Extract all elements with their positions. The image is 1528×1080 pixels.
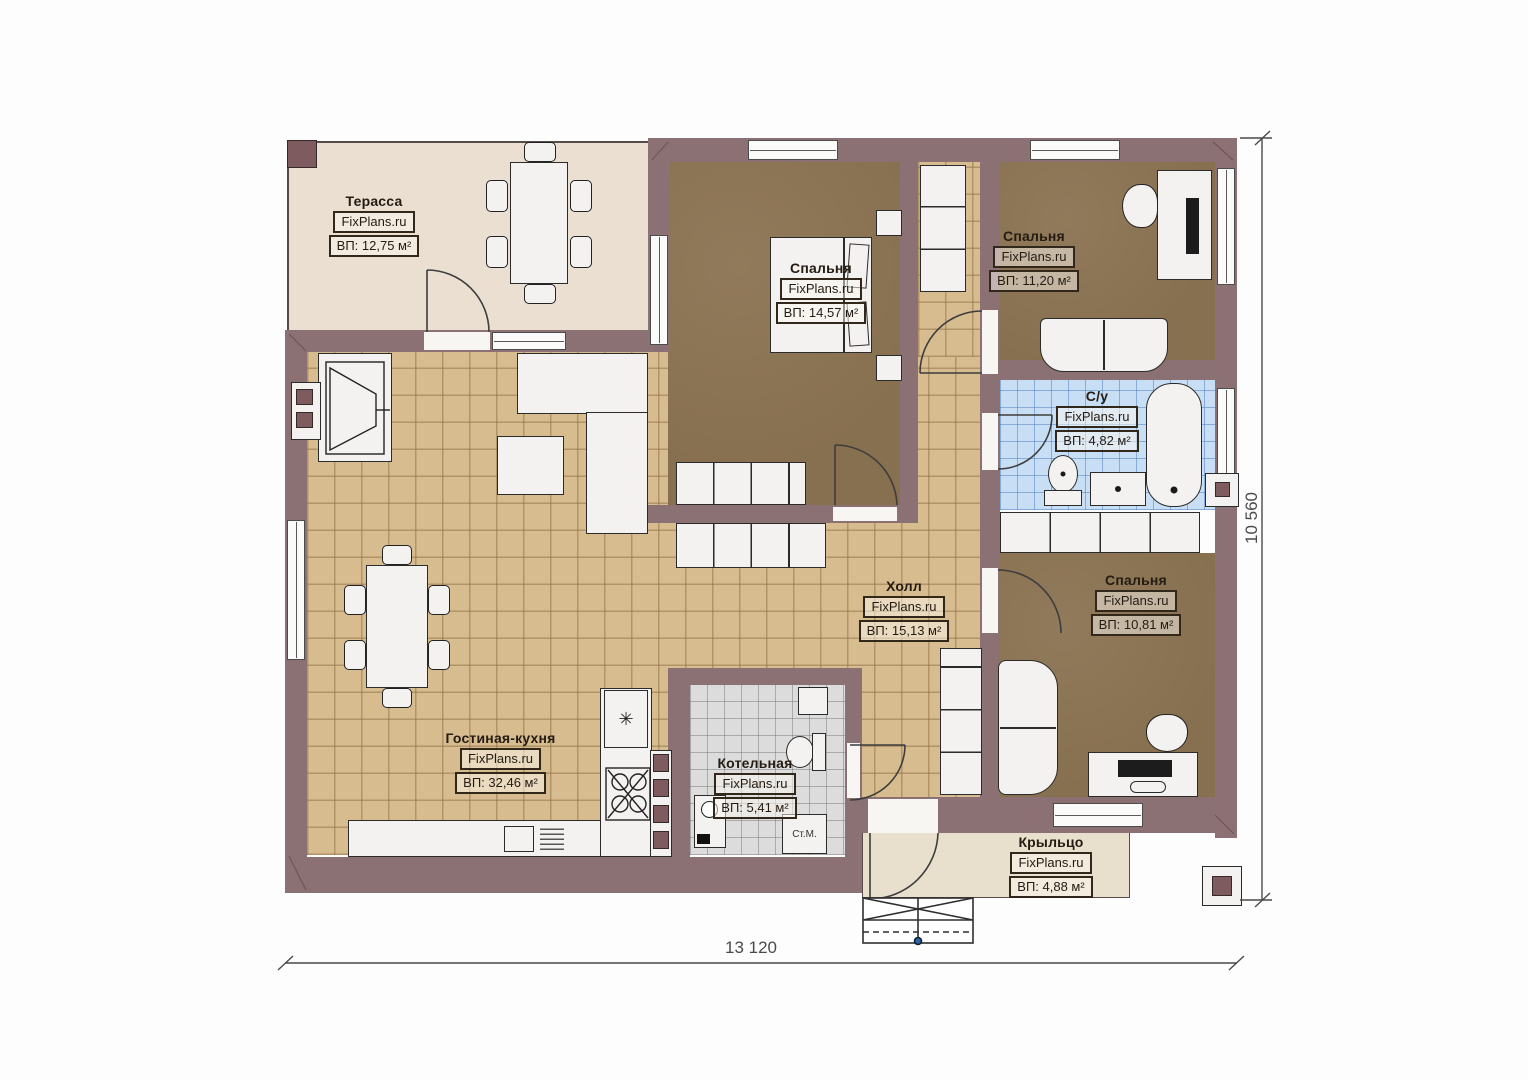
room-label-hall: Холл FixPlans.ru ВП: 15,13 м² xyxy=(848,578,960,642)
room-name: С/у xyxy=(1086,388,1108,404)
desk-chair xyxy=(1122,184,1158,228)
nightstand xyxy=(876,210,902,236)
room-label-boiler: Котельная FixPlans.ru ВП: 5,41 м² xyxy=(700,755,810,819)
fireplace-flue-core xyxy=(296,389,313,405)
room-area: ВП: 5,41 м² xyxy=(713,797,796,819)
wall-bottom xyxy=(285,857,862,893)
room-name: Спальня xyxy=(790,260,852,276)
watermark: FixPlans.ru xyxy=(1010,852,1091,874)
bath-sink xyxy=(1090,472,1146,506)
terrace-chair xyxy=(524,284,556,304)
desk-keyboard xyxy=(1130,781,1166,793)
terrace-chair xyxy=(570,180,592,212)
porch-column-core xyxy=(1212,876,1232,896)
room-label-terrace: Терасса FixPlans.ru ВП: 12,75 м² xyxy=(318,193,430,257)
corner-sofa-top xyxy=(517,353,648,414)
room-label-bedroom3: Спальня FixPlans.ru ВП: 10,81 м² xyxy=(1080,572,1192,636)
terrace-chair xyxy=(524,142,556,162)
toilet-bowl xyxy=(1048,455,1078,493)
room-area: ВП: 14,57 м² xyxy=(776,302,867,324)
terrace-chair xyxy=(486,236,508,268)
floor-plan: ✳ Ст.М. xyxy=(0,0,1528,1080)
window-bedroom1-top xyxy=(748,140,838,160)
dining-table xyxy=(366,565,428,688)
room-area: ВП: 11,20 м² xyxy=(989,270,1079,292)
window-bedroom3-porch xyxy=(1053,803,1143,827)
cabinet-module xyxy=(653,754,669,772)
hall-wardrobe-top xyxy=(676,523,826,568)
dimension-height: 10 560 xyxy=(1242,488,1262,548)
wall-column-marker-core xyxy=(1215,482,1230,497)
dining-chair xyxy=(382,688,412,708)
terrace-table xyxy=(510,162,568,284)
watermark: FixPlans.ru xyxy=(993,246,1074,268)
fridge: ✳ xyxy=(604,690,648,748)
door-gap-terrace xyxy=(424,332,490,350)
watermark: FixPlans.ru xyxy=(1056,406,1137,428)
dining-chair xyxy=(428,585,450,615)
room-area: ВП: 12,75 м² xyxy=(329,235,420,257)
terrace-chair xyxy=(486,180,508,212)
room-name: Котельная xyxy=(717,755,792,771)
room-area: ВП: 4,88 м² xyxy=(1009,876,1092,898)
toilet-tank xyxy=(812,733,826,771)
corner-sofa-side xyxy=(586,412,648,534)
corridor-wardrobe xyxy=(920,165,966,292)
wall-top xyxy=(648,138,1237,162)
desk xyxy=(1157,170,1212,280)
room-label-porch: Крыльцо FixPlans.ru ВП: 4,88 м² xyxy=(996,834,1106,898)
room-label-bedroom1: Спальня FixPlans.ru ВП: 14,57 м² xyxy=(765,260,877,324)
loveseat-line xyxy=(1103,320,1105,370)
sofa-line xyxy=(1000,727,1056,729)
fireplace-flue-core xyxy=(296,412,313,428)
door-gap-bedroom3 xyxy=(982,568,998,633)
room-label-bathroom: С/у FixPlans.ru ВП: 4,82 м² xyxy=(1043,388,1151,452)
watermark: FixPlans.ru xyxy=(1095,590,1176,612)
kitchen-drainer xyxy=(540,828,564,850)
desk-monitor xyxy=(1186,198,1199,254)
room-name: Гостиная-кухня xyxy=(445,730,555,746)
toilet-tank xyxy=(1044,490,1082,506)
fireplace xyxy=(318,353,392,462)
kitchen-sink xyxy=(504,826,534,852)
terrace-chair xyxy=(570,236,592,268)
wall-boiler-top xyxy=(668,668,862,685)
cabinet-module xyxy=(653,831,669,849)
nightstand xyxy=(876,355,902,381)
wall-bedroom1-right xyxy=(900,160,918,523)
room-name: Спальня xyxy=(1105,572,1167,588)
room-area: ВП: 32,46 м² xyxy=(455,772,546,794)
boiler-base xyxy=(697,834,710,844)
coffee-table xyxy=(497,436,564,495)
room-area: ВП: 4,82 м² xyxy=(1055,430,1138,452)
door-gap-bedroom1 xyxy=(833,507,897,521)
cabinet-module xyxy=(653,779,669,797)
watermark: FixPlans.ru xyxy=(333,211,414,233)
room-name: Спальня xyxy=(1003,228,1065,244)
door-gap-bathroom xyxy=(982,413,998,470)
terrace-column xyxy=(287,140,317,168)
room-name: Холл xyxy=(886,578,922,594)
dining-chair xyxy=(382,545,412,565)
watermark: FixPlans.ru xyxy=(460,748,541,770)
hall-closet-row xyxy=(1000,512,1200,553)
watermark: FixPlans.ru xyxy=(863,596,944,618)
washing-machine-label: Ст.М. xyxy=(792,829,817,840)
door-gap-boiler xyxy=(847,743,860,798)
dining-chair xyxy=(344,585,366,615)
fridge-snowflake-icon: ✳ xyxy=(618,709,633,730)
room-area: ВП: 15,13 м² xyxy=(859,620,950,642)
room-area: ВП: 10,81 м² xyxy=(1091,614,1182,636)
window-bedroom1-terrace xyxy=(650,235,668,345)
watermark: FixPlans.ru xyxy=(780,278,861,300)
dining-chair xyxy=(344,640,366,670)
bedroom1-wardrobe xyxy=(676,462,806,505)
bathtub xyxy=(1146,383,1202,507)
room-name: Крыльцо xyxy=(1018,834,1083,850)
room-name: Терасса xyxy=(346,193,403,209)
desk-monitor xyxy=(1118,760,1172,777)
washing-machine: Ст.М. xyxy=(782,814,827,854)
room-label-living-kitchen: Гостиная-кухня FixPlans.ru ВП: 32,46 м² xyxy=(438,730,563,794)
window-living-left xyxy=(287,520,305,660)
cabinet-module xyxy=(653,805,669,823)
window-bedroom2-right xyxy=(1217,168,1235,285)
boiler-sink xyxy=(798,687,828,715)
watermark: FixPlans.ru xyxy=(714,773,795,795)
desk-chair xyxy=(1146,714,1188,752)
window-bedroom2-top xyxy=(1030,140,1120,160)
dimension-width: 13 120 xyxy=(725,938,777,958)
door-gap-bedroom2 xyxy=(982,310,998,374)
room-label-bedroom2: Спальня FixPlans.ru ВП: 11,20 м² xyxy=(978,228,1090,292)
dining-chair xyxy=(428,640,450,670)
door-gap-entrance xyxy=(868,799,938,833)
hall-wardrobe-column xyxy=(940,648,982,795)
window-terrace-living xyxy=(492,332,566,350)
